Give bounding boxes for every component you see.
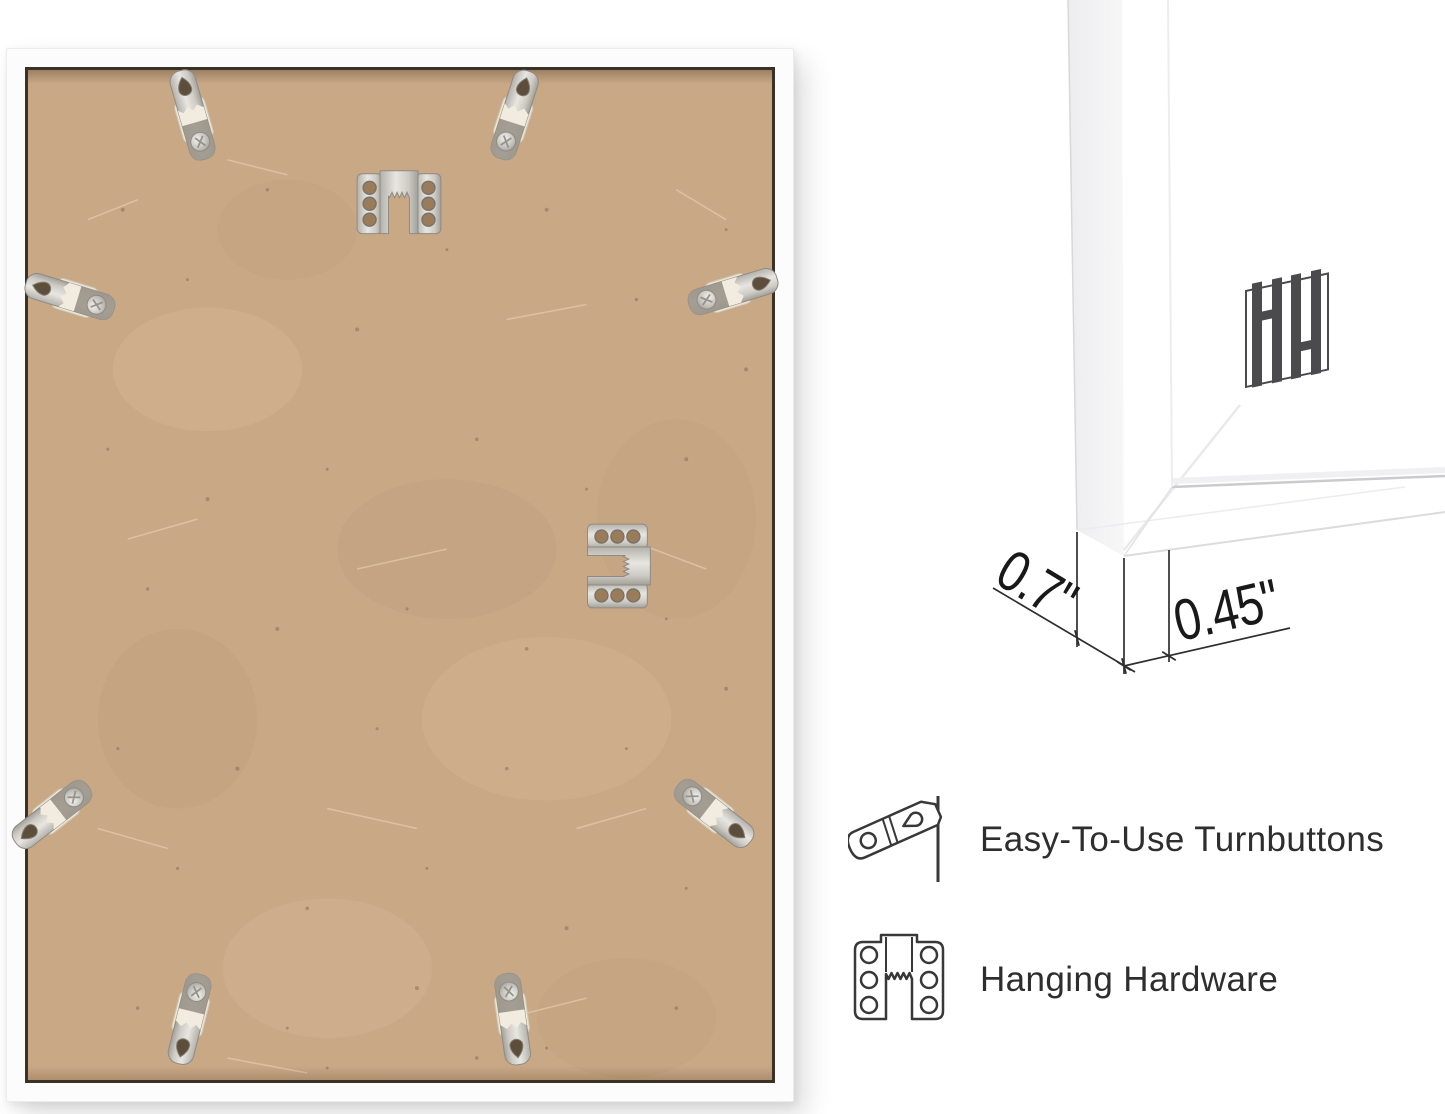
board-texture xyxy=(28,70,772,1080)
turnbutton xyxy=(685,263,782,319)
frame-corner-photo xyxy=(1060,0,1445,558)
turnbutton-icon xyxy=(848,790,960,890)
feature-label-hanging-hardware: Hanging Hardware xyxy=(980,960,1278,1000)
feature-label-turnbuttons: Easy-To-Use Turnbuttons xyxy=(980,820,1384,860)
turnbutton xyxy=(163,971,215,1068)
sawtooth-hanger-top xyxy=(357,171,441,234)
backing-board xyxy=(25,67,775,1083)
turnbutton xyxy=(21,268,118,324)
frame-back-photo xyxy=(6,48,794,1102)
hanging-hardware-icon xyxy=(848,928,960,1028)
turnbutton xyxy=(668,773,759,854)
board-hardware-graphic xyxy=(28,70,772,1080)
turnbutton xyxy=(491,972,534,1067)
turnbutton xyxy=(6,774,97,855)
